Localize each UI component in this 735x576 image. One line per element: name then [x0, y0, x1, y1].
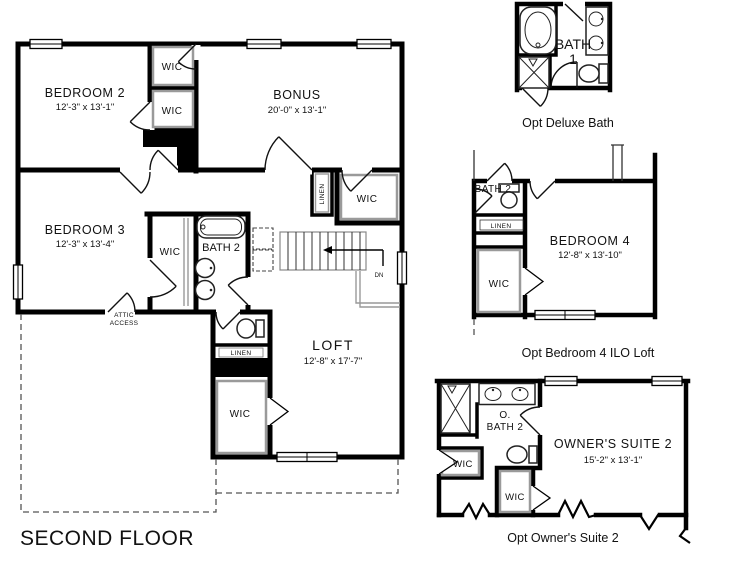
toilet-icon [237, 319, 264, 338]
window [357, 40, 391, 49]
bonus-dims: 20'-0" x 13'-1" [268, 105, 326, 116]
linen-label: LINEN [491, 223, 512, 230]
wic-label: WIC [489, 279, 510, 290]
opt-owners-suite2-caption: Opt Owner's Suite 2 [507, 531, 619, 545]
shower-icon [441, 384, 470, 433]
window [247, 40, 281, 49]
bath1-label: 1 [569, 51, 577, 67]
wall-layer [437, 381, 690, 543]
window [545, 377, 577, 386]
closet-door [525, 268, 543, 295]
loft-label: LOFT [312, 337, 354, 353]
wic-label: WIC [162, 106, 183, 117]
opt-deluxe-bath-caption: Opt Deluxe Bath [522, 116, 614, 130]
toilet-icon [579, 64, 608, 83]
linen-label: LINEN [231, 350, 252, 357]
bedroom3-label: BEDROOM 3 [45, 223, 125, 237]
bedroom4-dims: 12'-8" x 13'-10" [558, 250, 622, 261]
window [398, 252, 407, 284]
closet-door [533, 486, 550, 510]
window [277, 453, 337, 462]
attic-access-label: ACCESS [110, 320, 139, 327]
attic-access-label: ATTIC [114, 312, 134, 319]
stairs-dn-label: DN [375, 273, 384, 279]
opt-owners-suite2: O. BATH 2 WIC WIC OWNER'S SUITE 2 15'-2"… [435, 377, 691, 546]
floorplan-drawing: DN [0, 0, 735, 576]
wall-chase [213, 358, 270, 377]
wic-label: WIC [453, 459, 473, 470]
page-title: SECOND FLOOR [20, 527, 194, 550]
bathtub-icon [520, 7, 556, 54]
vanity-sink-icon [479, 384, 535, 405]
owners-suite2-label: OWNER'S SUITE 2 [554, 437, 672, 451]
fixtures [196, 216, 265, 338]
bonus-label: BONUS [273, 88, 320, 102]
bedroom3-dims: 12'-3" x 13'-4" [56, 239, 114, 250]
owners-bath-label: BATH 2 [487, 422, 524, 433]
toilet-icon [507, 446, 537, 463]
bathtub-icon [197, 216, 245, 238]
window [535, 311, 595, 320]
owners-bath-label: O. [499, 410, 510, 421]
wall-chase [177, 130, 196, 171]
opt-bedroom4: BATH 2 LINEN WIC BEDROOM 4 12'-8" x 13'-… [474, 145, 655, 360]
bath1-label: BATH [555, 36, 591, 52]
sink-icon [196, 259, 215, 278]
wic-label: WIC [230, 409, 251, 420]
sink-icon [196, 281, 215, 300]
wic-label: WIC [160, 247, 181, 258]
main-plan: DN [14, 40, 407, 513]
closet-door [270, 398, 288, 425]
opt-deluxe-bath: BATH 1 Opt Deluxe Bath [517, 0, 614, 130]
door-arc [265, 137, 312, 170]
stairs: DN [253, 228, 400, 307]
owners-suite2-dims: 15'-2" x 13'-1" [584, 455, 642, 466]
linen-label-vertical: LINEN [319, 184, 326, 205]
window [14, 265, 23, 299]
wic-label: WIC [505, 492, 525, 503]
window [652, 377, 682, 386]
bedroom2-label: BEDROOM 2 [45, 86, 125, 100]
shower-icon [519, 57, 549, 88]
window [30, 40, 62, 49]
bedroom4-label: BEDROOM 4 [550, 234, 630, 248]
opt-bedroom4-caption: Opt Bedroom 4 ILO Loft [522, 346, 655, 360]
wic-label: WIC [162, 62, 183, 73]
door-arc [120, 172, 150, 193]
bedroom2-dims: 12'-3" x 13'-1" [56, 102, 114, 113]
bath2-label: BATH 2 [202, 242, 240, 254]
floorplan-page: DN [0, 0, 735, 576]
loft-dims: 12'-8" x 17'-7" [304, 356, 362, 367]
bath2-label: BATH 2 [475, 184, 512, 195]
wic-label: WIC [357, 194, 378, 205]
